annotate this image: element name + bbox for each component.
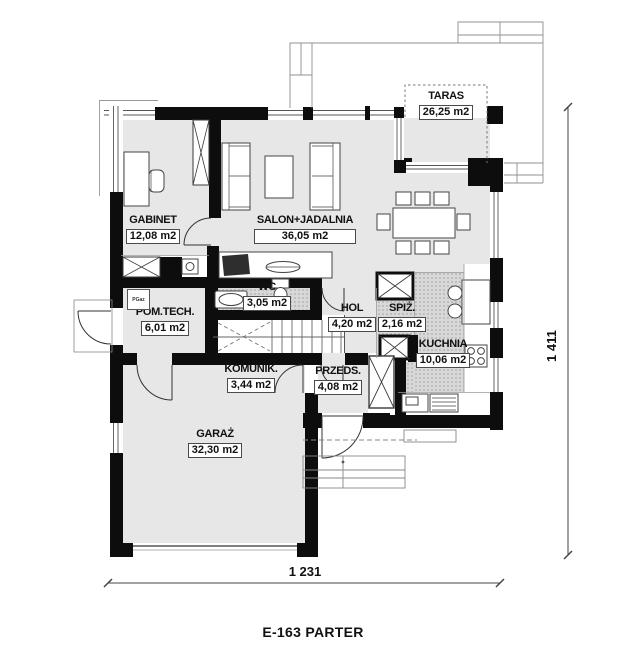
room-label-wc: WC 3,05 m2 <box>237 281 297 311</box>
room-name: KOMUNIK. <box>218 363 284 375</box>
wall-segment <box>345 353 368 365</box>
window <box>490 302 503 328</box>
room-name: PRZEDS. <box>308 365 368 377</box>
room-area: 3,44 m2 <box>227 378 275 392</box>
room-name: HOL <box>324 302 380 314</box>
wall-segment <box>490 171 503 192</box>
floor-salon <box>210 118 490 277</box>
room-name: GABINET <box>115 214 191 226</box>
room-area: 4,20 m2 <box>328 317 376 331</box>
wall-segment <box>390 415 503 428</box>
wall-segment <box>363 413 390 428</box>
room-name: GARAŻ <box>184 428 246 440</box>
door-side-exterior <box>78 311 111 344</box>
room-name: WC <box>237 281 297 293</box>
room-name: SPIŻ. <box>374 302 430 314</box>
wall-segment <box>209 107 221 218</box>
window <box>490 192 503 258</box>
entrance-porch <box>303 440 417 488</box>
room-name: KUCHNIA <box>411 338 475 350</box>
room-label-przeds: PRZEDS. 4,08 m2 <box>308 365 368 395</box>
room-label-taras: TARAS 26,25 m2 <box>408 90 484 120</box>
room-area: 3,05 m2 <box>243 296 291 310</box>
wall-segment <box>110 543 133 557</box>
kitchen-appliance-strip <box>398 392 464 415</box>
chimney-outline <box>290 43 312 108</box>
wall-segment <box>318 353 322 365</box>
gas-meter-box: PGaz <box>127 289 150 310</box>
room-name: SALON+JADALNIA <box>240 214 370 226</box>
garage-door-opening <box>133 543 297 557</box>
wall-segment <box>394 107 404 120</box>
room-area: 12,08 m2 <box>126 229 180 243</box>
wall-segment <box>303 107 313 120</box>
wall-segment <box>207 246 219 288</box>
room-area: 10,06 m2 <box>416 353 470 367</box>
room-label-pomtech: POM.TECH. 6,01 m2 <box>125 306 205 336</box>
front-door-opening <box>322 413 363 428</box>
wall-segment <box>490 328 503 358</box>
room-label-hol: HOL 4,20 m2 <box>324 302 380 332</box>
room-label-garaz: GARAŻ 32,30 m2 <box>184 428 246 458</box>
wall-segment <box>297 543 318 557</box>
room-name: TARAS <box>408 90 484 102</box>
window <box>490 358 503 392</box>
room-label-salon: SALON+JADALNIA 36,05 m2 <box>240 214 370 244</box>
room-area: 6,01 m2 <box>141 321 189 335</box>
wall-segment <box>394 158 412 173</box>
kitchen-counter <box>464 264 490 392</box>
plan-title: E-163 PARTER <box>233 624 393 640</box>
taras-pillar <box>487 106 503 124</box>
wall-segment <box>205 288 218 365</box>
room-area: 2,16 m2 <box>378 317 426 331</box>
wall-segment <box>110 453 123 557</box>
room-area: 36,05 m2 <box>254 229 356 243</box>
side-door-landing <box>74 300 112 352</box>
wall-segment <box>395 353 406 415</box>
room-label-gabinet: GABINET 12,08 m2 <box>115 214 191 244</box>
wall-segment <box>110 192 123 310</box>
room-label-spiz: SPIŻ. 2,16 m2 <box>374 302 430 332</box>
window <box>109 423 123 453</box>
room-area: 32,30 m2 <box>188 443 242 457</box>
room-area: 26,25 m2 <box>419 105 473 119</box>
room-label-kuchnia: KUCHNIA 10,06 m2 <box>411 338 475 368</box>
exterior-step <box>404 430 456 442</box>
room-area: 4,08 m2 <box>314 380 362 394</box>
wardrobe-icon <box>369 356 394 408</box>
wall-segment <box>310 288 322 310</box>
dimension-height: 1 411 <box>544 300 559 362</box>
wall-segment <box>160 257 182 277</box>
wall-segment <box>205 310 322 320</box>
floor-plan: GABINET 12,08 m2 SALON+JADALNIA 36,05 m2… <box>0 0 634 649</box>
wall-segment <box>490 258 503 302</box>
dimension-width: 1 231 <box>260 564 350 579</box>
door-front <box>322 417 363 458</box>
room-label-komunik: KOMUNIK. 3,44 m2 <box>218 363 284 393</box>
